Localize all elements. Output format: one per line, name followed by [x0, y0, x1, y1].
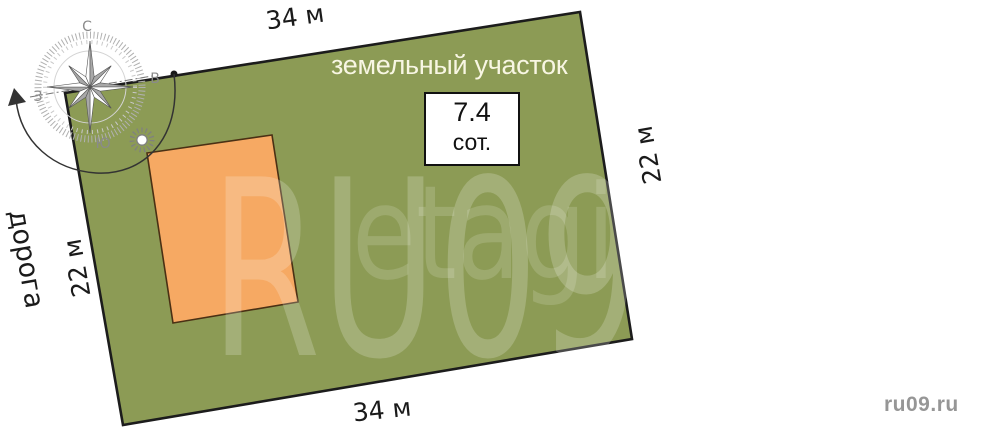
plot-diagram: RU09 etagi земельный участок 7.4 сот. 34… — [0, 0, 991, 431]
compass-south-label: Ю — [95, 136, 110, 152]
parcel-title: земельный участок — [331, 50, 581, 81]
compass-north-label: С — [82, 19, 92, 35]
area-unit: сот. — [426, 128, 518, 156]
area-value: 7.4 — [426, 96, 518, 128]
compass-west-label: З — [34, 89, 43, 105]
dimension-label-bottom: 34 м — [351, 393, 412, 428]
compass-east-label: В — [150, 71, 160, 87]
sun-icon — [132, 130, 152, 150]
site-watermark: ru09.ru — [884, 393, 959, 417]
area-badge: 7.4 сот. — [424, 92, 520, 166]
compass-rose: С В З Ю — [0, 0, 181, 191]
